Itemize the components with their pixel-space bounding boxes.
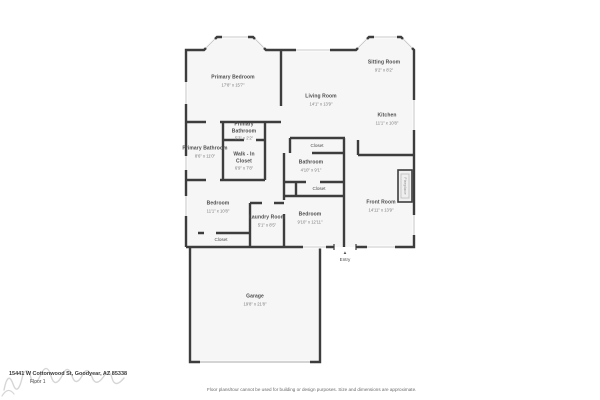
room-dims: 5'3" x 2'2" — [229, 135, 259, 140]
room-name: Garage — [244, 294, 267, 301]
room-name: Kitchen — [376, 113, 399, 120]
entry-marker: ▲ Entry — [340, 251, 351, 262]
entry-arrow-icon: ▲ — [340, 251, 351, 256]
room-label-bathroom: Bathroom 4'10" x 9'1" — [299, 160, 323, 173]
floor-label: Floor 1 — [30, 379, 46, 385]
room-dims: 19'8" x 21'8" — [244, 301, 267, 306]
room-dims: 9'2" x 8'2" — [368, 67, 400, 72]
room-label-walk-in-closet: Walk - In Closet 6'9" x 7'8" — [229, 151, 259, 170]
room-dims: 8'6" x 11'0" — [182, 153, 227, 158]
room-label-laundry-room: Laundry Room 5'1" x 8'5" — [249, 215, 285, 228]
fireplace-label: Fireplace — [403, 177, 407, 194]
room-name: Living Room — [305, 94, 336, 101]
room-dims: 5'1" x 8'5" — [249, 222, 285, 227]
room-label-front-room: Front Room 14'11" x 13'9" — [366, 200, 395, 213]
room-name: Bedroom — [207, 201, 230, 208]
room-label-closet-hall: Closet — [310, 143, 323, 150]
room-dims: 17'8" x 15'7" — [211, 82, 254, 87]
room-name: Bedroom — [298, 212, 323, 219]
room-dims: 9'10" x 12'11" — [298, 219, 323, 224]
room-label-primary-bedroom: Primary Bedroom 17'8" x 15'7" — [211, 75, 254, 88]
room-dims: 11'1" x 10'8" — [207, 208, 230, 213]
room-dims: 6'9" x 7'8" — [229, 165, 259, 170]
room-name: Bathroom — [299, 160, 323, 167]
room-label-bedroom-middle: Bedroom 9'10" x 12'11" — [298, 212, 323, 225]
floor-plan-drawing — [0, 0, 600, 400]
room-name: Sitting Room — [368, 60, 400, 67]
room-label-primary-bathroom: Primary Bathroom 8'6" x 11'0" — [182, 146, 227, 159]
floor-plan-stage: Primary Bedroom 17'8" x 15'7" Living Roo… — [0, 0, 600, 400]
room-name: Closet — [310, 143, 323, 148]
room-dims: 14'1" x 13'9" — [305, 101, 336, 106]
room-label-living-room: Living Room 14'1" x 13'9" — [305, 94, 336, 107]
room-label-garage: Garage 19'8" x 21'8" — [244, 294, 267, 307]
room-dims: 4'10" x 9'1" — [299, 167, 323, 172]
room-label-kitchen: Kitchen 11'1" x 10'8" — [376, 113, 399, 126]
room-name: Front Room — [366, 200, 395, 207]
entry-label: Entry — [340, 257, 351, 262]
room-name: Closet — [214, 237, 227, 242]
room-name: Primary Bathroom — [182, 146, 227, 153]
disclaimer-text: Floor plans/tour cannot be used for buil… — [207, 387, 416, 392]
room-label-closet-small: Closet — [312, 186, 325, 193]
room-label-closet-bedroom: Closet — [214, 237, 227, 244]
room-name: Laundry Room — [249, 215, 285, 222]
room-label-primary-bathroom-upper: Primary Bathroom 5'3" x 2'2" — [229, 121, 259, 140]
room-dims: 11'1" x 10'8" — [376, 120, 399, 125]
floor-plan-page: { "rooms": { "primary_bedroom": {"name":… — [0, 0, 600, 400]
room-name: Primary Bedroom — [211, 75, 254, 82]
address-text: 15441 W Cottonwood St, Goodyear, AZ 8533… — [9, 371, 127, 377]
room-dims: 14'11" x 13'9" — [366, 207, 395, 212]
room-name: Closet — [312, 186, 325, 191]
room-name: Primary Bathroom — [229, 121, 259, 134]
room-name: Walk - In Closet — [229, 151, 259, 164]
room-label-sitting-room: Sitting Room 9'2" x 8'2" — [368, 60, 400, 73]
room-label-bedroom-left: Bedroom 11'1" x 10'8" — [207, 201, 230, 214]
